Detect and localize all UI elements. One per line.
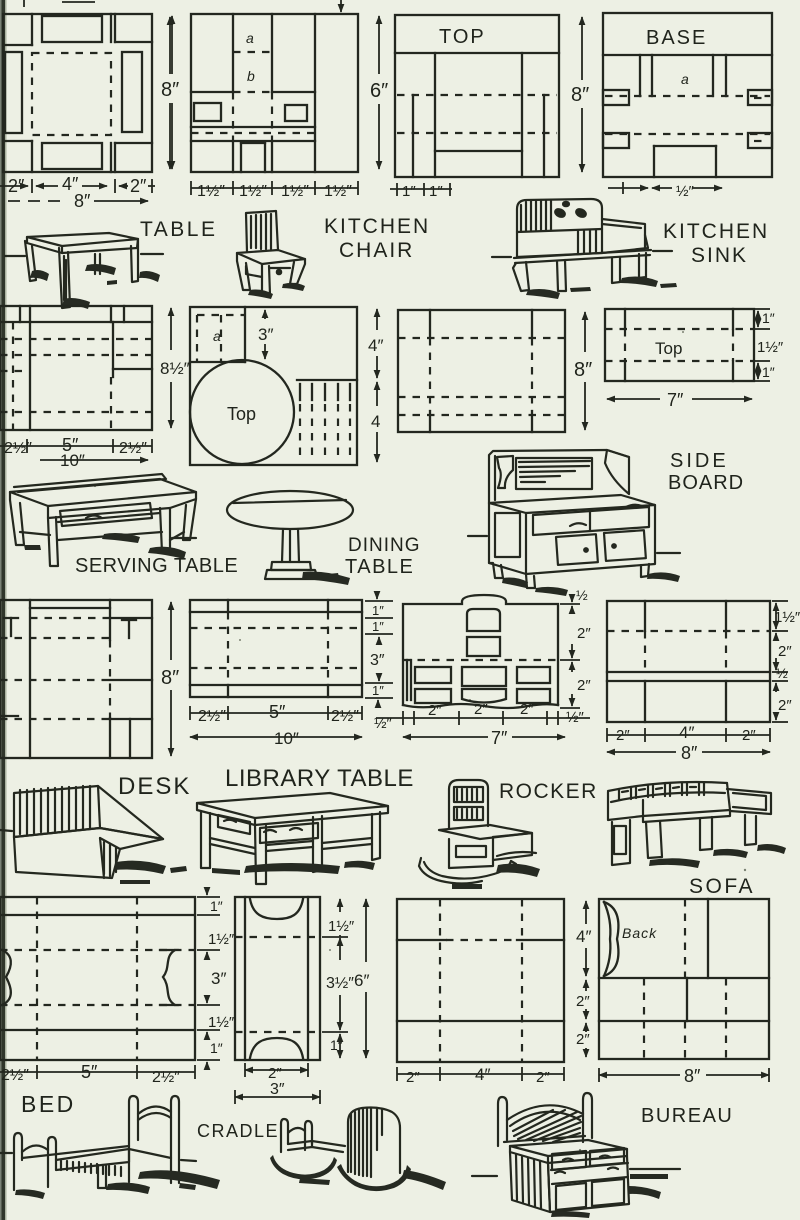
svg-text:3″: 3″ — [258, 325, 273, 344]
svg-text:TABLE: TABLE — [345, 556, 414, 578]
svg-text:Back: Back — [622, 925, 657, 941]
svg-text:DESK: DESK — [118, 773, 191, 800]
svg-text:3″: 3″ — [370, 652, 385, 669]
svg-text:2″: 2″ — [778, 697, 792, 714]
svg-text:BED: BED — [21, 1091, 76, 1117]
svg-text:½: ½ — [776, 665, 788, 681]
svg-text:1″: 1″ — [372, 683, 384, 698]
svg-text:KITCHEN: KITCHEN — [663, 220, 769, 243]
svg-text:2½″: 2½″ — [152, 1069, 180, 1086]
svg-text:2″: 2″ — [576, 1031, 590, 1048]
svg-text:1½″: 1½″ — [208, 931, 235, 948]
svg-text:CHAIR: CHAIR — [339, 239, 414, 262]
svg-text:2″: 2″ — [577, 625, 591, 642]
svg-text:2″: 2″ — [616, 727, 630, 744]
svg-text:7″: 7″ — [491, 728, 508, 748]
svg-text:8″: 8″ — [571, 84, 589, 106]
svg-text:2″: 2″ — [268, 1065, 282, 1082]
svg-text:BASE: BASE — [646, 27, 707, 49]
svg-text:2″: 2″ — [428, 702, 442, 719]
svg-text:2″: 2″ — [778, 643, 792, 660]
svg-text:CRADLE: CRADLE — [197, 1121, 279, 1141]
svg-text:SOFA: SOFA — [689, 875, 755, 898]
svg-text:1″: 1″ — [762, 364, 775, 380]
svg-text:7″: 7″ — [667, 390, 684, 410]
svg-text:TOP: TOP — [439, 26, 486, 48]
svg-text:4″: 4″ — [368, 336, 383, 355]
svg-text:2″: 2″ — [8, 176, 25, 196]
svg-text:10″: 10″ — [274, 729, 299, 748]
svg-text:Top: Top — [655, 339, 682, 358]
svg-text:1½″: 1½″ — [208, 1014, 235, 1031]
svg-text:DINING: DINING — [348, 535, 421, 556]
svg-text:4: 4 — [371, 412, 380, 431]
svg-text:KITCHEN: KITCHEN — [324, 215, 430, 238]
svg-text:8″: 8″ — [161, 667, 179, 689]
svg-text:SINK: SINK — [691, 244, 748, 267]
svg-text:ROCKER: ROCKER — [499, 780, 598, 803]
svg-text:2″: 2″ — [474, 701, 488, 718]
svg-text:2½″: 2½″ — [119, 440, 147, 457]
svg-text:8″: 8″ — [684, 1066, 701, 1086]
svg-text:1½″: 1½″ — [774, 609, 800, 626]
svg-text:Top: Top — [227, 404, 256, 424]
svg-text:8″: 8″ — [161, 79, 179, 101]
svg-text:1″: 1″ — [330, 1037, 343, 1053]
svg-text:2″: 2″ — [130, 176, 147, 196]
svg-text:2″: 2″ — [406, 1069, 420, 1086]
svg-text:SIDE: SIDE — [670, 450, 729, 472]
svg-text:b: b — [247, 68, 255, 84]
svg-text:a: a — [681, 71, 689, 87]
svg-text:1½″: 1½″ — [239, 183, 267, 200]
svg-text:4″: 4″ — [679, 723, 694, 742]
svg-text:1″: 1″ — [210, 898, 223, 914]
svg-text:SERVING TABLE: SERVING TABLE — [75, 555, 238, 577]
svg-text:6″: 6″ — [354, 971, 369, 990]
svg-text:8″: 8″ — [574, 359, 592, 381]
svg-text:a: a — [246, 30, 254, 46]
svg-text:1½″: 1½″ — [324, 183, 352, 200]
svg-text:4″: 4″ — [475, 1065, 490, 1084]
svg-text:1″: 1″ — [372, 619, 384, 634]
svg-text:8″: 8″ — [74, 191, 91, 211]
svg-text:4″: 4″ — [576, 927, 591, 946]
svg-text:5″: 5″ — [81, 1062, 98, 1082]
svg-text:2½″: 2½″ — [4, 440, 32, 457]
svg-text:TABLE: TABLE — [140, 218, 217, 241]
svg-text:1½″: 1½″ — [197, 183, 225, 200]
svg-text:1″: 1″ — [372, 603, 384, 618]
svg-text:2″: 2″ — [520, 701, 534, 718]
svg-text:½: ½ — [576, 587, 588, 603]
svg-text:1″: 1″ — [402, 183, 416, 200]
svg-text:6″: 6″ — [370, 80, 388, 102]
svg-text:3″: 3″ — [270, 1081, 285, 1098]
svg-text:1″: 1″ — [429, 183, 443, 200]
svg-text:5″: 5″ — [269, 702, 286, 722]
svg-text:BUREAU: BUREAU — [641, 1105, 733, 1127]
svg-text:2″: 2″ — [742, 727, 756, 744]
svg-text:2½″: 2½″ — [198, 708, 226, 725]
svg-text:2″: 2″ — [577, 677, 591, 694]
svg-text:½″: ½″ — [676, 183, 695, 200]
svg-text:½″: ½″ — [566, 709, 585, 726]
svg-text:2½″: 2½″ — [331, 708, 359, 725]
svg-text:8½″: 8½″ — [160, 359, 190, 378]
svg-text:2½″: 2½″ — [1, 1067, 29, 1084]
svg-text:1″: 1″ — [762, 310, 775, 326]
svg-text:a: a — [213, 328, 221, 344]
svg-text:1½″: 1½″ — [757, 339, 784, 356]
svg-text:10″: 10″ — [60, 451, 85, 470]
svg-text:3″: 3″ — [211, 969, 226, 988]
svg-text:2″: 2″ — [536, 1069, 550, 1086]
svg-text:1½″: 1½″ — [328, 918, 355, 935]
svg-text:8″: 8″ — [681, 743, 698, 763]
svg-text:1½″: 1½″ — [281, 183, 309, 200]
svg-text:BOARD: BOARD — [668, 472, 744, 494]
svg-text:2″: 2″ — [576, 993, 590, 1010]
svg-text:3½″: 3½″ — [326, 975, 354, 992]
svg-text:LIBRARY TABLE: LIBRARY TABLE — [225, 765, 414, 792]
svg-text:1″: 1″ — [210, 1040, 223, 1056]
